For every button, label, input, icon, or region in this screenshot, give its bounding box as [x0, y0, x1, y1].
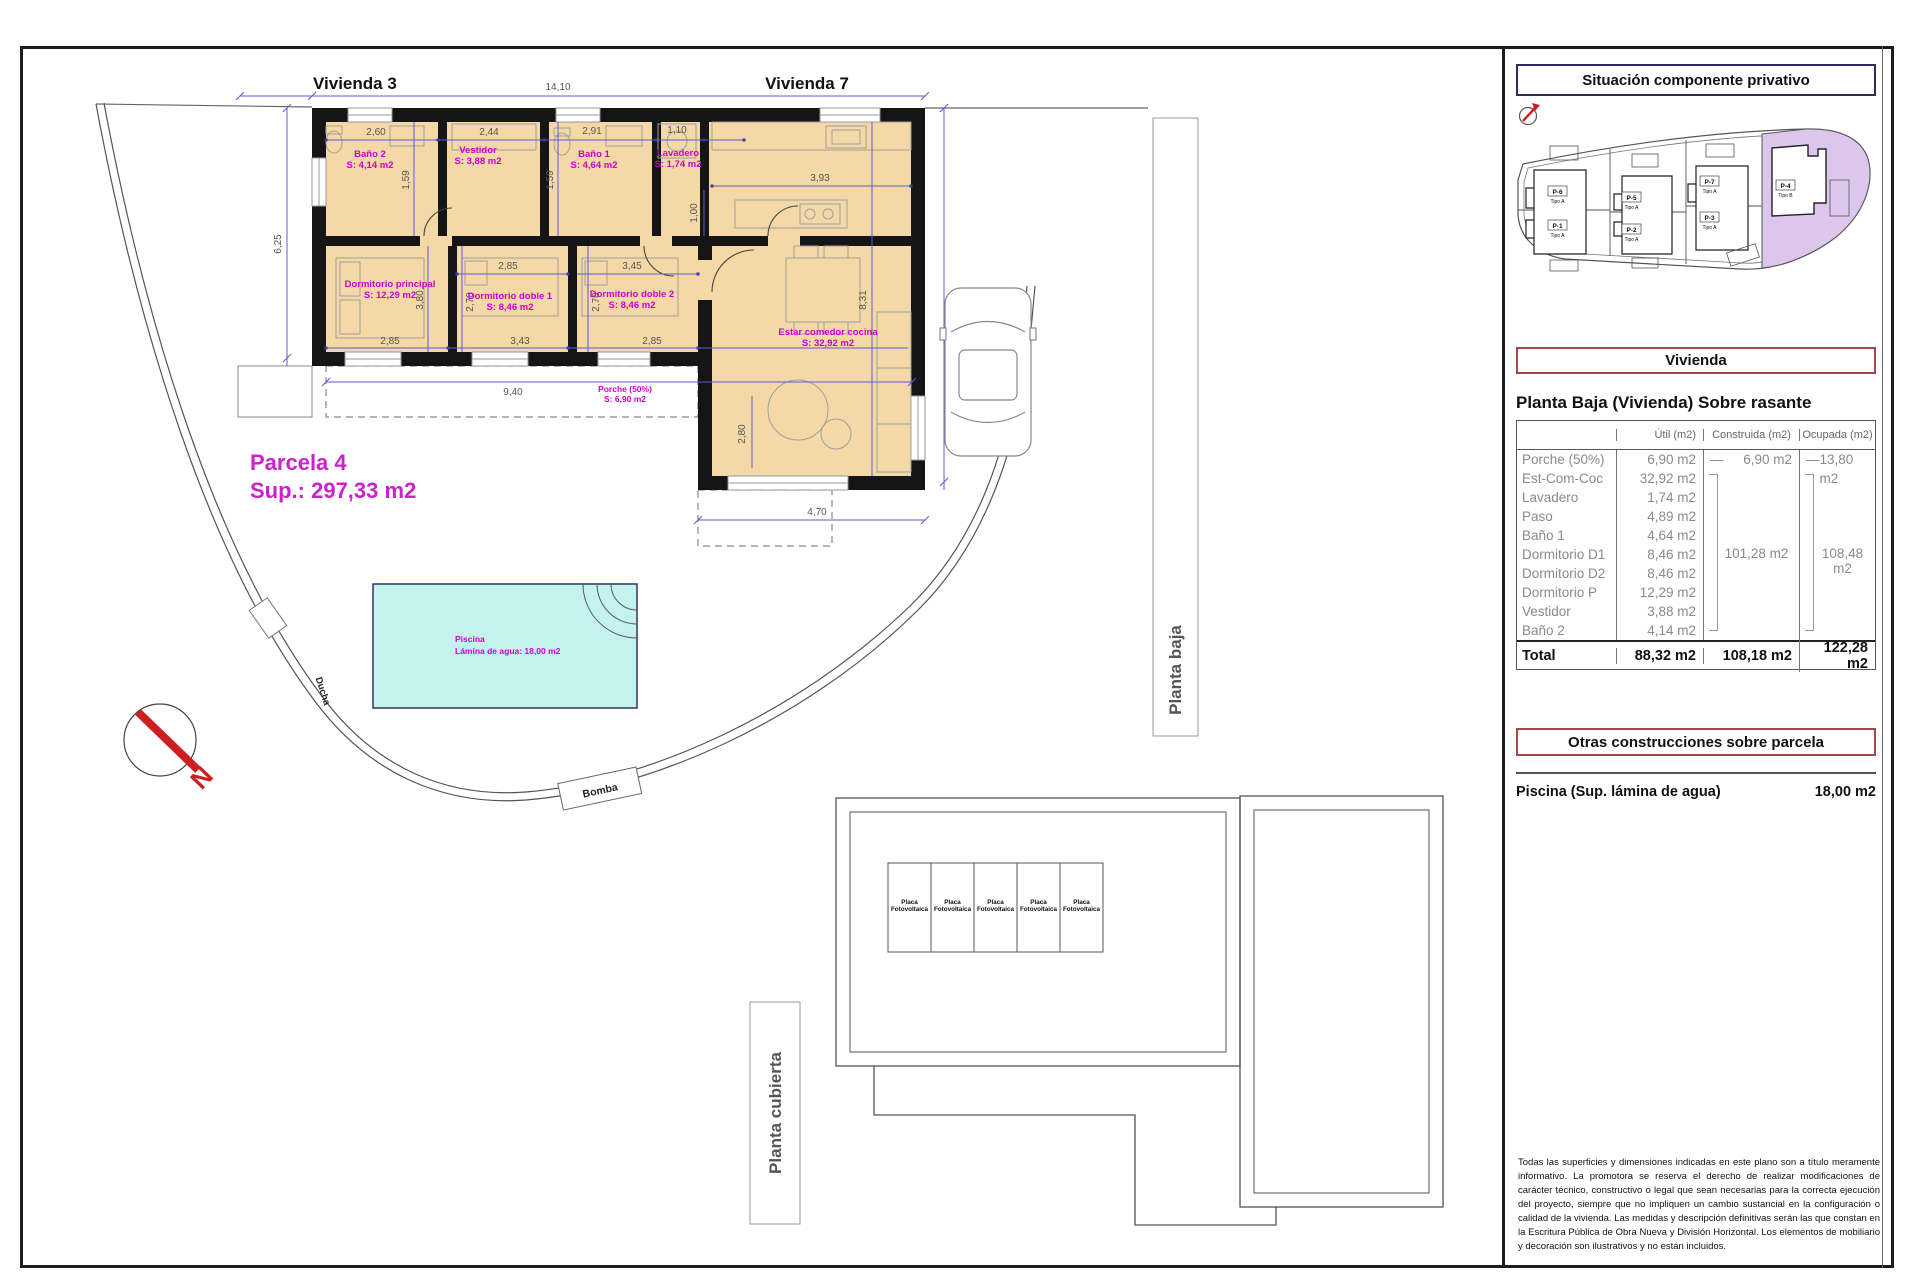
table-row: Est-Com-Coc — [1522, 469, 1616, 488]
table-row: Baño 2 — [1522, 621, 1616, 640]
construida-group: —6,90 m2 101,28 m2 — [1703, 450, 1799, 640]
col-util: Útil (m2) — [1616, 429, 1703, 441]
plot-label-selected: P-4 Tipo B — [1776, 180, 1795, 199]
svg-text:S: 32,92 m2: S: 32,92 m2 — [802, 338, 854, 349]
planta-baja-strip: Planta baja — [1153, 118, 1198, 736]
svg-text:3,43: 3,43 — [510, 336, 530, 347]
svg-text:Planta cubierta: Planta cubierta — [766, 1052, 785, 1174]
svg-text:Tipo A: Tipo A — [1703, 189, 1718, 195]
room-label: Dormitorio doble 1 — [468, 291, 553, 302]
table-row: Baño 1 — [1522, 526, 1616, 545]
svg-text:S: 3,88 m2: S: 3,88 m2 — [455, 156, 502, 167]
col-construida: Construida (m2) — [1703, 429, 1799, 441]
svg-text:3,45: 3,45 — [622, 261, 642, 272]
piscina-row: Piscina (Sup. lámina de agua) 18,00 m2 — [1516, 784, 1876, 800]
svg-text:1,59: 1,59 — [545, 170, 556, 190]
roof-plan — [836, 796, 1443, 1225]
svg-text:Placa: Placa — [901, 899, 918, 906]
svg-text:2,60: 2,60 — [366, 127, 386, 138]
svg-text:Tipo A: Tipo A — [1625, 205, 1640, 211]
svg-text:P-1: P-1 — [1552, 223, 1563, 230]
svg-text:1,59: 1,59 — [401, 170, 412, 190]
surface-table: Útil (m2) Construida (m2) Ocupada (m2) P… — [1516, 420, 1876, 670]
svg-text:P-7: P-7 — [1704, 179, 1715, 186]
svg-text:Placa: Placa — [944, 899, 961, 906]
table-total-row: Total 88,32 m2 108,18 m2 122,28 m2 — [1517, 640, 1875, 669]
svg-text:S: 8,46 m2: S: 8,46 m2 — [609, 300, 656, 311]
porch-label: Porche (50%) — [598, 384, 652, 394]
svg-text:Placa: Placa — [1073, 899, 1090, 906]
svg-text:P-6: P-6 — [1552, 189, 1563, 196]
parcela-label-1: Parcela 4 — [250, 450, 347, 475]
svg-text:2,44: 2,44 — [479, 127, 499, 138]
otras-title: Otras construcciones sobre parcela — [1516, 728, 1876, 756]
svg-text:Placa: Placa — [987, 899, 1004, 906]
situacion-title: Situación componente privativo — [1516, 64, 1876, 96]
plot-label: P-7 Tipo A — [1700, 176, 1719, 195]
svg-text:Tipo A: Tipo A — [1703, 225, 1718, 231]
table-row: Porche (50%) — [1522, 450, 1616, 469]
svg-text:4,70: 4,70 — [807, 507, 827, 518]
svg-text:S: 4,64 m2: S: 4,64 m2 — [571, 160, 618, 171]
table-row: Dormitorio P — [1522, 583, 1616, 602]
room-label: Estar comedor cocina — [778, 327, 878, 338]
table-row: Vestidor — [1522, 602, 1616, 621]
vivienda3-title: Vivienda 3 — [313, 74, 397, 93]
svg-text:S: 4,14 m2: S: 4,14 m2 — [347, 160, 394, 171]
planta-baja-heading: Planta Baja (Vivienda) Sobre rasante — [1516, 393, 1811, 413]
table-row: Dormitorio D2 — [1522, 564, 1616, 583]
table-row: Lavadero — [1522, 488, 1616, 507]
svg-text:8,31: 8,31 — [858, 290, 869, 310]
room-label: Lavadero — [657, 148, 699, 159]
col-ocupada: Ocupada (m2) — [1799, 429, 1875, 441]
svg-text:9,40: 9,40 — [503, 387, 523, 398]
legal-disclaimer: Todas las superficies y dimensiones indi… — [1518, 1156, 1880, 1254]
site-plan: P-6 Tipo A P-1 Tipo A P-5 Tipo A P-2 Tip… — [1510, 118, 1884, 296]
parcela-label-2: Sup.: 297,33 m2 — [250, 478, 416, 503]
svg-text:6,25: 6,25 — [273, 234, 284, 254]
svg-text:Fotovoltaica: Fotovoltaica — [1020, 906, 1058, 913]
svg-text:P-3: P-3 — [1704, 215, 1715, 222]
svg-text:Tipo A: Tipo A — [1625, 237, 1640, 243]
room-label: Dormitorio doble 2 — [590, 289, 674, 300]
svg-text:3,93: 3,93 — [810, 173, 830, 184]
table-header-row: Útil (m2) Construida (m2) Ocupada (m2) — [1517, 421, 1875, 450]
svg-text:Fotovoltaica: Fotovoltaica — [977, 906, 1015, 913]
svg-text:1,00: 1,00 — [689, 203, 700, 223]
svg-text:Placa: Placa — [1030, 899, 1047, 906]
plot-label: P-3 Tipo A — [1700, 212, 1719, 231]
entry-step — [238, 366, 312, 417]
svg-text:3,80: 3,80 — [415, 290, 426, 310]
svg-text:S: 8,46 m2: S: 8,46 m2 — [487, 302, 534, 313]
svg-text:2,85: 2,85 — [498, 261, 518, 272]
svg-text:14,10: 14,10 — [545, 82, 570, 93]
svg-text:Fotovoltaica: Fotovoltaica — [934, 906, 972, 913]
svg-text:S: 6,90 m2: S: 6,90 m2 — [604, 394, 646, 404]
floor-plan-drawing: Ducha Bomba N Piscina Lámina de agua: 18… — [0, 0, 1500, 1280]
table-body: Porche (50%) Est-Com-Coc Lavadero Paso B… — [1517, 450, 1875, 640]
svg-text:2,85: 2,85 — [380, 336, 400, 347]
pool: Piscina Lámina de agua: 18,00 m2 — [373, 584, 637, 708]
north-compass-icon: N — [124, 704, 219, 795]
table-row: Dormitorio D1 — [1522, 545, 1616, 564]
room-label: Baño 1 — [578, 149, 610, 160]
svg-text:Tipo A: Tipo A — [1551, 199, 1566, 205]
svg-text:Fotovoltaica: Fotovoltaica — [891, 906, 929, 913]
panel-divider — [1502, 46, 1505, 1268]
svg-text:S: 12,29 m2: S: 12,29 m2 — [364, 290, 416, 301]
vivienda7-title: Vivienda 7 — [765, 74, 849, 93]
svg-text:P-4: P-4 — [1780, 183, 1791, 190]
piscina-value: 18,00 m2 — [1815, 784, 1876, 800]
room-label: Baño 2 — [354, 149, 386, 160]
table-row: Paso — [1522, 507, 1616, 526]
svg-text:Planta baja: Planta baja — [1166, 625, 1185, 715]
svg-text:S: 1,74 m2: S: 1,74 m2 — [655, 159, 702, 170]
plot-label: P-2 Tipo A — [1622, 224, 1641, 243]
plot-label: P-6 Tipo A — [1548, 186, 1567, 205]
svg-text:Tipo A: Tipo A — [1551, 233, 1566, 239]
svg-text:1,10: 1,10 — [667, 125, 687, 136]
car — [940, 288, 1036, 456]
otras-divider — [1516, 772, 1876, 774]
room-label: Dormitorio principal — [345, 279, 436, 290]
svg-text:2,91: 2,91 — [582, 126, 602, 137]
photovoltaic-panels: PlacaFotovoltaica PlacaFotovoltaica Plac… — [888, 863, 1103, 952]
ocupada-group: —13,80 m2 108,48 m2 — [1799, 450, 1875, 640]
room-label: Vestidor — [459, 145, 497, 156]
pump-box: Bomba — [558, 767, 642, 810]
svg-text:2,85: 2,85 — [642, 336, 662, 347]
piscina-label: Piscina (Sup. lámina de agua) — [1516, 784, 1721, 800]
vivienda-title: Vivienda — [1516, 347, 1876, 374]
svg-text:2,80: 2,80 — [737, 424, 748, 444]
pool-name: Piscina — [455, 634, 485, 644]
pool-detail: Lámina de agua: 18,00 m2 — [455, 646, 561, 656]
plot-label: P-5 Tipo A — [1622, 192, 1641, 211]
shower-tray — [249, 598, 287, 638]
svg-text:P-2: P-2 — [1626, 227, 1637, 234]
planta-cubierta-strip: Planta cubierta — [750, 1002, 800, 1224]
svg-text:Tipo B: Tipo B — [1778, 193, 1793, 199]
plot-label: P-1 Tipo A — [1548, 220, 1567, 239]
svg-text:Fotovoltaica: Fotovoltaica — [1063, 906, 1101, 913]
drawing-sheet: Ducha Bomba N Piscina Lámina de agua: 18… — [0, 0, 1920, 1280]
svg-text:P-5: P-5 — [1626, 195, 1637, 202]
